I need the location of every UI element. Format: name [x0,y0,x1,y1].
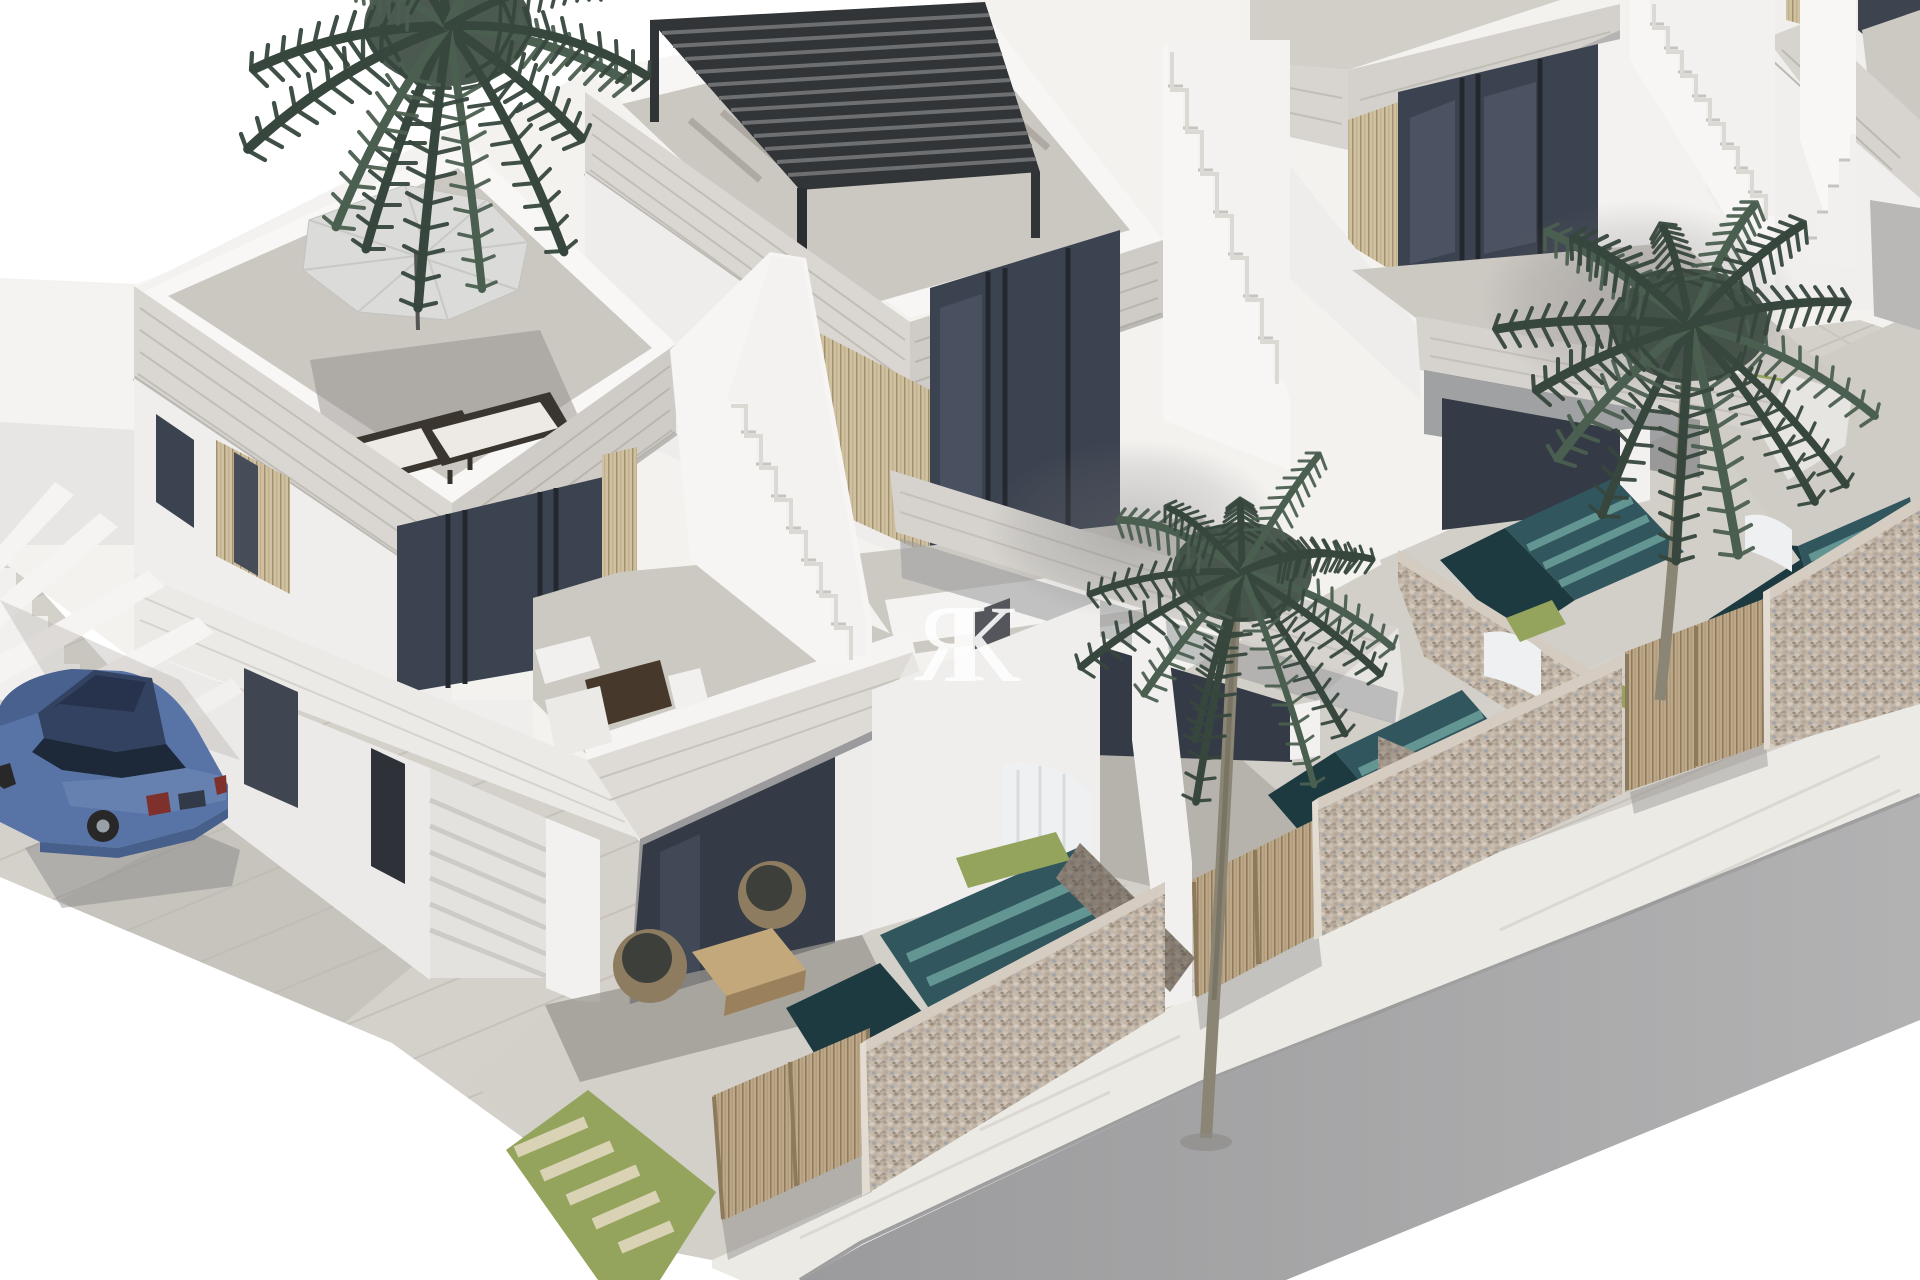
svg-text:K: K [942,583,1021,705]
